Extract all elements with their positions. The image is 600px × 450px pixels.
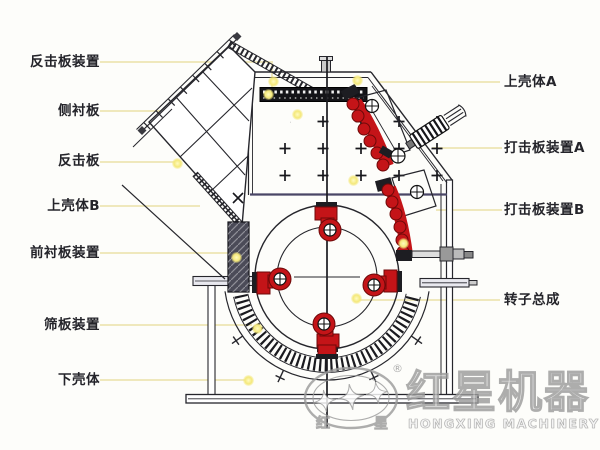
lower-chute-wall xyxy=(122,185,225,279)
highlight-dot xyxy=(351,293,362,304)
highlight-dot xyxy=(263,89,274,100)
highlight-dot xyxy=(348,175,359,186)
highlight-dot xyxy=(252,323,263,334)
highlight-dot xyxy=(231,252,242,263)
label-impact-plate: 反击板 xyxy=(4,153,100,169)
blow-bar-right xyxy=(363,270,402,296)
label-rotor-assembly: 转子总成 xyxy=(504,292,560,308)
label-screen-plate-assembly: 筛板装置 xyxy=(4,317,100,333)
highlight-dot xyxy=(172,158,183,169)
shaft-mount xyxy=(420,279,477,288)
highlight-dot xyxy=(268,76,279,87)
label-upper-casing-b: 上壳体B xyxy=(4,198,100,214)
highlight-dot xyxy=(398,238,409,249)
label-blow-bar-assembly-b: 打击板装置B xyxy=(504,202,585,218)
highlight-dot xyxy=(243,375,254,386)
blow-bar-top xyxy=(315,202,341,241)
crusher-structure-diagram: 反击板装置 侧衬板 反击板 上壳体B 前衬板装置 筛板装置 下壳体 上壳体A 打… xyxy=(0,0,600,450)
label-side-liner: 侧衬板 xyxy=(4,103,100,119)
adjust-bolt xyxy=(412,247,473,261)
highlight-dot xyxy=(352,75,363,86)
blow-bar-left xyxy=(252,268,291,294)
label-impact-plate-assembly: 反击板装置 xyxy=(4,54,100,70)
label-front-liner-assembly: 前衬板装置 xyxy=(4,245,100,261)
label-blow-bar-assembly-a: 打击板装置A xyxy=(504,140,585,156)
label-lower-casing: 下壳体 xyxy=(4,372,100,388)
highlight-dot xyxy=(292,109,303,120)
label-upper-casing-a: 上壳体A xyxy=(504,74,557,90)
